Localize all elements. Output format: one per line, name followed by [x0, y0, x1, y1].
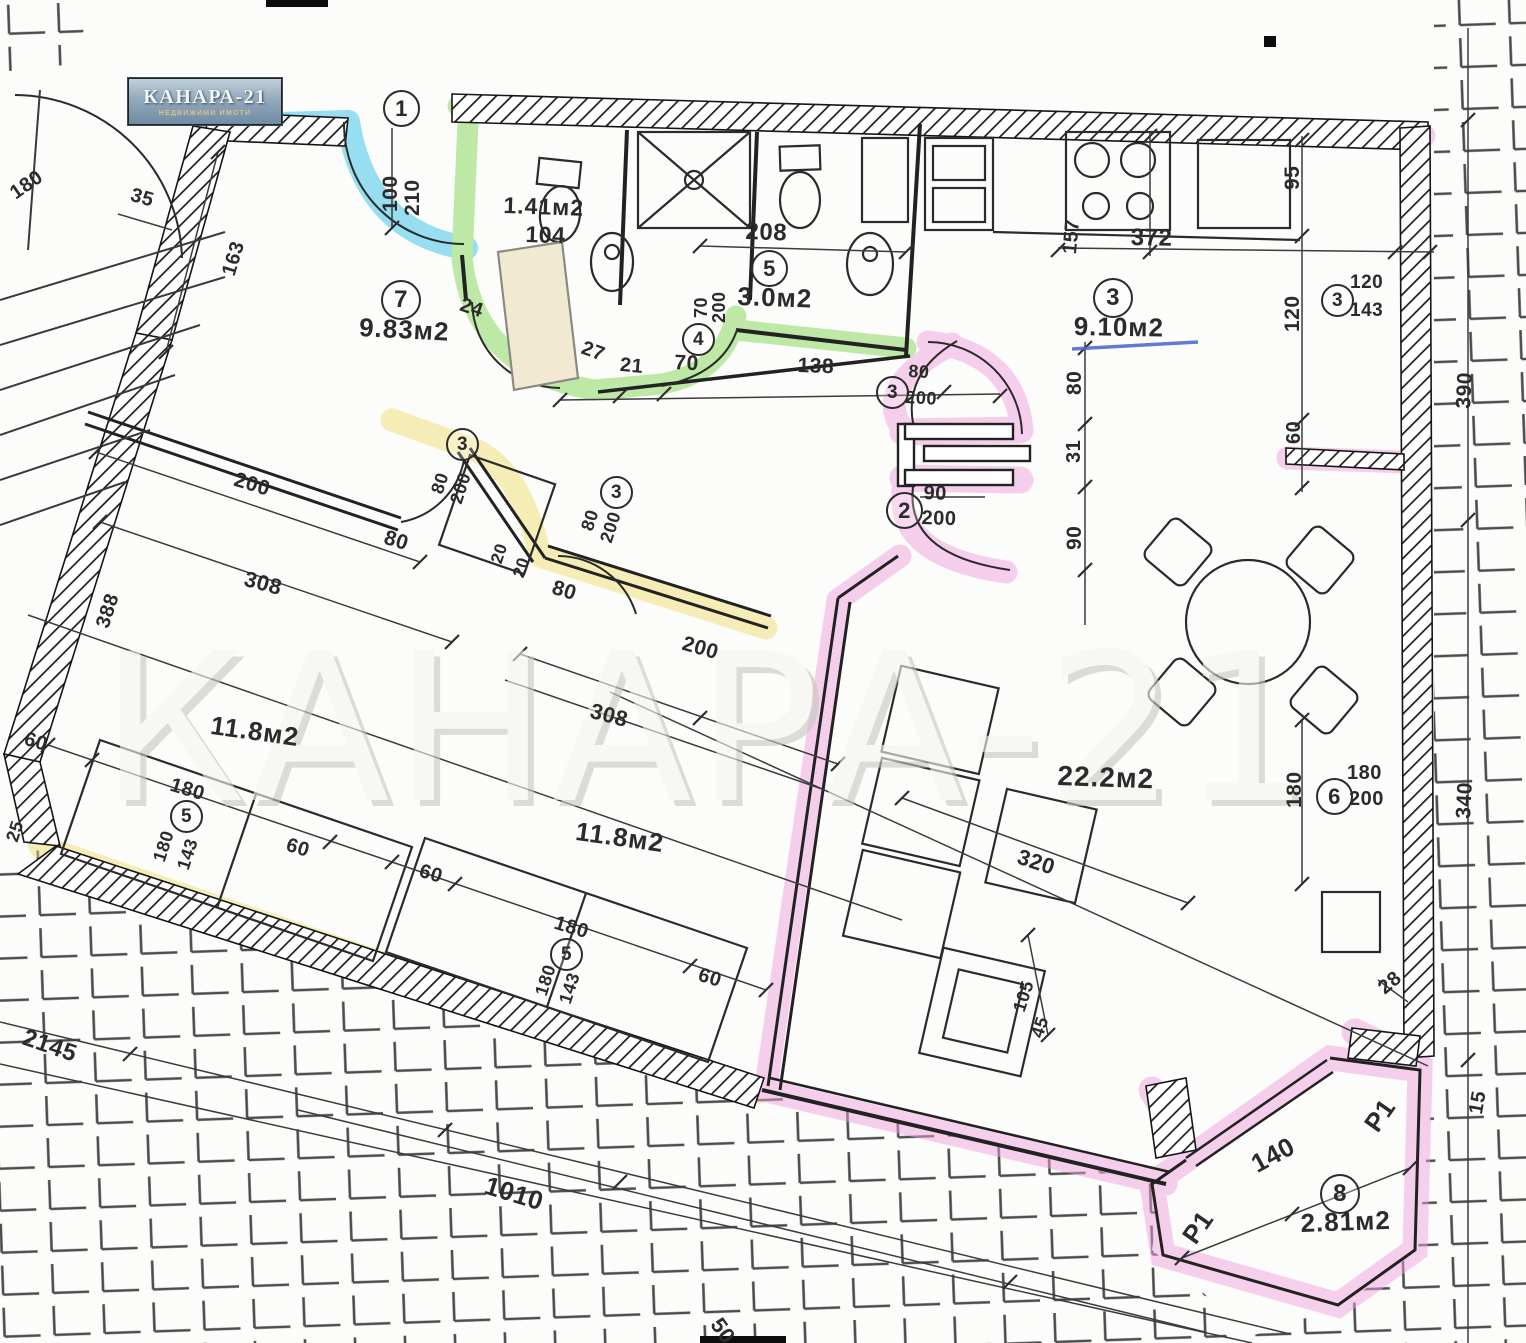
dimension-label: 95: [1281, 166, 1305, 190]
dimension-label: 90: [923, 482, 947, 506]
dimension-label: 120: [1281, 295, 1305, 332]
circled-ref-label: 2: [886, 492, 923, 529]
dimension-label: 390: [1452, 372, 1478, 410]
dimension-label: 200: [709, 291, 730, 323]
agency-logo: КАНАРА-21 НЕДВИЖИМИ ИМОТИ: [127, 77, 283, 126]
dimension-label: 80: [908, 361, 930, 383]
toilet-tank-2: [780, 145, 821, 170]
room-area-label: 3.0м2: [737, 281, 813, 315]
room-area-label: 1.41м2: [503, 192, 584, 222]
dimension-label: 90: [1063, 526, 1087, 550]
agency-logo-title: КАНАРА-21: [143, 86, 266, 109]
circled-ref-label: 3: [876, 376, 909, 409]
dimension-label: 104: [525, 221, 566, 249]
dimension-label: 210: [401, 179, 425, 216]
dimension-label: 15: [1465, 1089, 1492, 1116]
washing-machine: [862, 138, 908, 222]
wc-sink: [591, 233, 633, 291]
circled-ref-label: 5: [170, 800, 203, 833]
cooktop: [1066, 132, 1170, 230]
toilet-tank: [537, 158, 581, 188]
dimension-label: 31: [1063, 440, 1086, 463]
room-area-label: 2.81м2: [1300, 1205, 1391, 1239]
circled-ref-label: 3: [446, 428, 479, 461]
room-area-label: 9.10м2: [1073, 311, 1164, 344]
bath-sink: [847, 233, 893, 295]
kitchen-sink: [925, 138, 993, 230]
dimension-label: 21: [619, 354, 644, 379]
dimension-label: 208: [745, 218, 787, 247]
dimension-label: 80: [1063, 371, 1087, 395]
circled-ref-label: 3: [600, 476, 633, 509]
dimension-label: 138: [797, 354, 834, 379]
shower-tray: [638, 132, 750, 228]
floor-plan-drawing: КАНАРА-21 КАНАРА-21: [0, 0, 1526, 1343]
dimension-label: 180: [1347, 762, 1382, 785]
dimension-label: 180: [1283, 771, 1307, 808]
dimension-label: 340: [1452, 782, 1478, 820]
dimension-label: 100: [379, 175, 403, 212]
tv-cabinet: [1322, 892, 1380, 952]
agency-logo-subtitle: НЕДВИЖИМИ ИМОТИ: [159, 110, 252, 117]
dimension-label: 143: [1350, 300, 1383, 322]
dimension-label: 200: [921, 507, 957, 531]
room-area-label: 9.83м2: [358, 312, 450, 348]
circled-ref-label: 1: [383, 90, 420, 127]
dimension-label: 70: [674, 351, 700, 376]
dimension-label: 200: [1349, 788, 1384, 811]
dimension-label: 60: [1283, 421, 1306, 444]
room-area-label: 22.2м2: [1057, 760, 1155, 795]
dimension-label: 120: [1350, 272, 1383, 294]
dimension-label: 157: [1059, 218, 1085, 255]
dimension-label: 200: [905, 387, 938, 410]
floor-plan-scan: КАНАРА-21 КАНАРА-21 КАНАРА-21 НЕДВИЖИМИ …: [0, 0, 1526, 1343]
kitchen-appliance: [1198, 140, 1290, 228]
dimension-label: 372: [1131, 224, 1173, 253]
